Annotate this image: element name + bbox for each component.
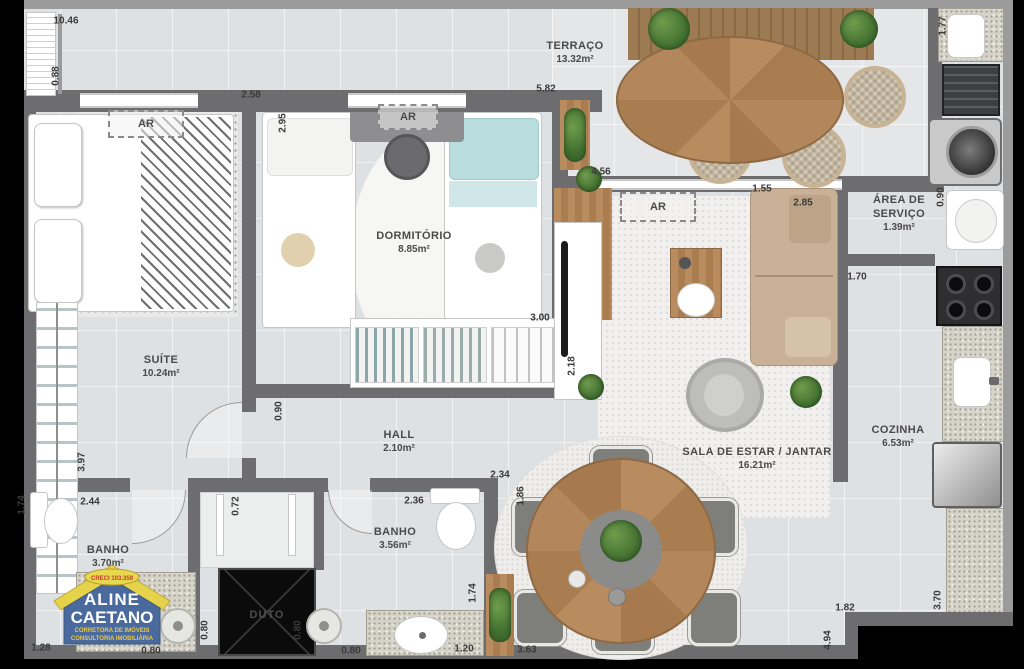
dimension-label: 1.74 [17,495,28,514]
floor-plan: TERRAÇO13.32m²DORMITÓRIO8.85m²SUÍTE10.24… [0,0,1024,669]
dimension-label: 0.88 [51,66,62,85]
dimension-label: 1.55 [752,184,771,195]
dimension-label: 1.74 [468,583,479,602]
dimension-label: 0.90 [936,187,947,206]
room-name: BANHO [374,526,416,540]
dimension-label: 2.44 [80,497,99,508]
dimension-label: 0.80 [141,646,160,657]
room-label-dormitorio: DORMITÓRIO8.85m² [376,230,452,256]
dimension-label: 3.00 [530,313,549,324]
dimension-label: 1.77 [938,16,949,35]
ac-reserved-label: AR [650,201,666,213]
room-area: 2.10m² [383,443,415,456]
dimension-label: 2.95 [278,113,289,132]
dimension-label: 2.18 [567,356,578,375]
dimension-label: 1.28 [31,643,50,654]
room-name: DORMITÓRIO [376,230,452,244]
ac-reserved-label: AR [400,111,416,123]
ac-reserved-box: AR [378,104,438,130]
dimension-label: 3.63 [517,645,536,656]
dimension-label: 2.34 [490,470,509,481]
dimension-label: 3.70 [933,590,944,609]
dimension-label: 0.72 [231,496,242,515]
dimension-label: 1.70 [847,272,866,283]
room-name: SUÍTE [142,354,179,368]
room-name: TERRAÇO [546,40,603,54]
room-name: COZINHA [872,424,925,438]
room-name: BANHO [87,544,129,558]
room-label-hall: HALL2.10m² [383,429,415,455]
room-name: HALL [383,429,415,443]
room-area: 6.53m² [872,438,925,451]
logo-name-line2: CAETANO [71,608,154,627]
room-area: 3.56m² [374,540,416,553]
room-label-suite: SUÍTE10.24m² [142,354,179,380]
room-label-terraco: TERRAÇO13.32m² [546,40,603,66]
dimension-label: 10.46 [53,16,78,27]
dimension-label: 3.97 [77,452,88,471]
brand-logo: CRECI 103.359 ALINE CAETANO CORRETORA DE… [52,564,172,646]
dimension-label: 0.90 [274,401,285,420]
ac-reserved-box: AR [108,110,184,138]
room-name: DUTO [250,609,285,623]
dimension-label: 5.82 [536,84,555,95]
logo-name-line1: ALINE [84,590,140,609]
room-area: 16.21m² [682,460,831,473]
room-label-banho-social: BANHO3.56m² [374,526,416,552]
dimension-label: 2.36 [404,496,423,507]
room-label-cozinha: COZINHA6.53m² [872,424,925,450]
dimension-label: 1.86 [516,486,527,505]
room-area: 8.85m² [376,244,452,257]
room-label-sala-estar-jantar: SALA DE ESTAR / JANTAR16.21m² [682,446,831,472]
room-label-duto: DUTO [250,609,285,623]
logo-subtitle-2: CONSULTORIA IMOBILIÁRIA [71,635,154,642]
room-name: SALA DE ESTAR / JANTAR [682,446,831,460]
room-area: 13.32m² [546,54,603,67]
ac-reserved-label: AR [138,118,154,130]
dimension-label: 2.58 [241,90,260,101]
brand-logo-svg: CRECI 103.359 ALINE CAETANO CORRETORA DE… [52,564,172,646]
dimension-label: 1.82 [835,603,854,614]
dimension-label: 2.85 [793,198,812,209]
room-name: ÁREA DE SERVIÇO [873,194,925,222]
ac-reserved-box: AR [620,192,696,222]
dimension-label: 4.56 [591,167,610,178]
dimension-label: 0.80 [293,620,304,639]
room-label-area-servico: ÁREA DE SERVIÇO1.39m² [873,194,925,234]
logo-subtitle-1: CORRETORA DE IMÓVEIS [74,626,149,634]
room-area: 10.24m² [142,368,179,381]
dimension-label: 0.80 [200,620,211,639]
dimension-label: 0.80 [341,646,360,657]
room-area: 1.39m² [873,222,925,235]
dimension-label: 4.94 [823,630,834,649]
dimension-label: 1.20 [454,644,473,655]
logo-ribbon-text: CRECI 103.359 [91,576,134,582]
